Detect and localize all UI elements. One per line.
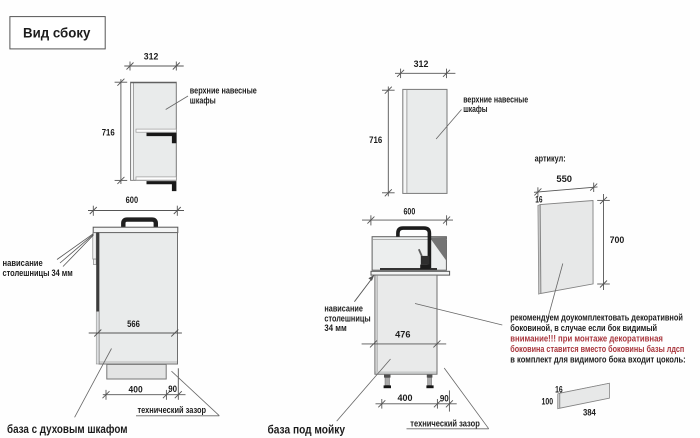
svg-text:312: 312 <box>414 59 429 69</box>
svg-text:550: 550 <box>556 174 572 184</box>
svg-text:600: 600 <box>404 207 416 217</box>
svg-text:90: 90 <box>168 384 177 394</box>
svg-text:716: 716 <box>102 128 115 138</box>
svg-text:база под мойку: база под мойку <box>268 424 346 436</box>
svg-text:34 мм: 34 мм <box>324 323 346 334</box>
svg-text:в комплект для видимого бока в: в комплект для видимого бока входит цоко… <box>510 354 685 365</box>
svg-text:шкафы: шкафы <box>190 96 216 107</box>
svg-text:90: 90 <box>440 393 449 403</box>
svg-text:476: 476 <box>395 330 410 340</box>
svg-text:столешницы 34 мм: столешницы 34 мм <box>3 268 73 279</box>
svg-text:артикул:: артикул: <box>535 153 566 164</box>
svg-text:рекомендуем доукомплектовать д: рекомендуем доукомплектовать декоративно… <box>510 313 683 324</box>
svg-text:716: 716 <box>369 135 382 145</box>
svg-text:312: 312 <box>144 51 159 61</box>
svg-text:566: 566 <box>127 319 140 329</box>
svg-text:технический зазор: технический зазор <box>138 405 207 416</box>
svg-text:внимание!!! при монтаже декора: внимание!!! при монтаже декоративная <box>510 334 663 345</box>
svg-text:боковина ставится вместо боков: боковина ставится вместо боковины базы л… <box>510 344 684 355</box>
svg-text:16: 16 <box>535 194 542 204</box>
svg-text:16: 16 <box>555 384 563 394</box>
svg-text:боковиной, в случае если бок в: боковиной, в случае если бок видимый <box>510 323 657 334</box>
svg-text:700: 700 <box>610 235 625 245</box>
svg-text:шкафы: шкафы <box>463 104 487 115</box>
svg-text:Вид сбоку: Вид сбоку <box>23 26 91 41</box>
svg-text:технический зазор: технический зазор <box>410 419 480 430</box>
svg-text:база с духовым шкафом: база с духовым шкафом <box>7 424 128 436</box>
svg-text:400: 400 <box>398 393 413 403</box>
svg-text:100: 100 <box>542 397 554 407</box>
svg-text:384: 384 <box>583 407 596 417</box>
svg-text:400: 400 <box>129 385 143 395</box>
svg-text:600: 600 <box>126 195 139 205</box>
